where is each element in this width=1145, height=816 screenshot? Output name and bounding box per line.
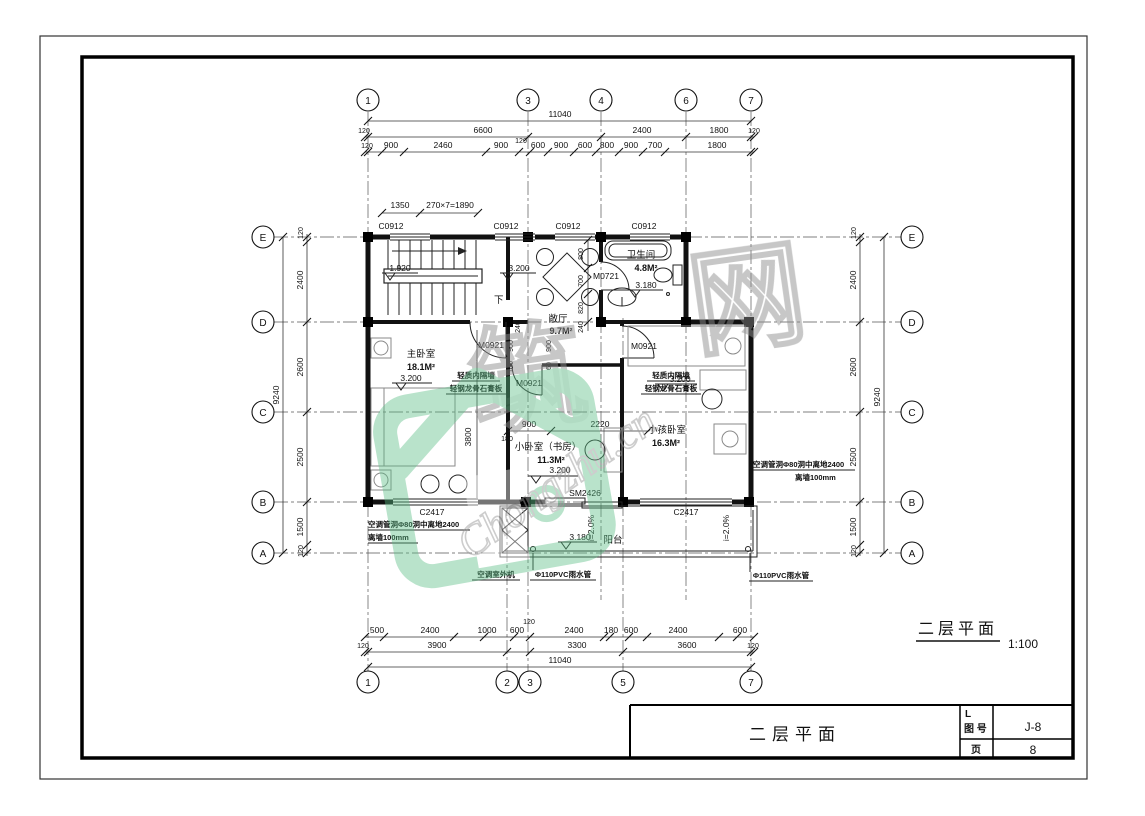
window-c0912-4 (630, 234, 670, 240)
dim-top-r3-8: 800 (600, 140, 614, 150)
grid-bubble-top-3: 3 (525, 96, 531, 107)
room-hall-level: 3.200 (508, 263, 530, 273)
grid-bubble-top-1: 1 (365, 96, 371, 107)
dim-bot-r1-5: 2400 (565, 625, 584, 635)
dim-right-5: 120 (851, 545, 858, 557)
label-c0912-4: C0912 (631, 221, 656, 231)
dim-top-r2-1: 6600 (474, 125, 493, 135)
grid-bubble-top-6: 6 (683, 96, 689, 107)
dim-right-0: 120 (851, 227, 858, 239)
grid-bubble-left-b: B (260, 498, 267, 509)
grid-bubble-right-e: E (909, 233, 916, 244)
caption-title: 二层平面 (918, 621, 998, 638)
dim-left-5: 120 (298, 545, 305, 557)
dim-bot-r2-0: 120 (357, 643, 369, 650)
title-block: 二层平面 L 图 号 页 J-8 8 (630, 705, 1073, 757)
dim-bot-r1-3: 600 (510, 625, 524, 635)
dim-right-4: 1500 (848, 517, 858, 536)
cabinet-icon (714, 424, 746, 454)
stair-down-label: 下 (494, 295, 504, 306)
dim-bot-r2-4: 120 (747, 643, 759, 650)
hall-table-icon (537, 249, 599, 306)
dim-right-total: 9240 (872, 387, 882, 406)
label-c2417-right: C2417 (673, 507, 698, 517)
dim-bot-r2-2: 3300 (568, 640, 587, 650)
room-bath-name: 卫生间 (627, 249, 656, 261)
grid-bubble-left-d: D (259, 318, 266, 329)
dim-top-r3-1: 900 (384, 140, 398, 150)
dim-top-r3-2: 2460 (434, 140, 453, 150)
label-c0912-3: C0912 (555, 221, 580, 231)
grid-bubble-left-a: A (260, 549, 267, 560)
floor-plan-sheet: 11040 120 6600 2400 1800 120 120 900 246… (0, 0, 1145, 816)
grid-bubble-bottom-5: 5 (620, 678, 626, 689)
dim-top-r3-7: 600 (578, 140, 592, 150)
note-partition-right-2: 轻钢龙骨石膏板 (645, 383, 698, 393)
watermark-char-2: 网 (682, 229, 814, 372)
dim-bot-r1-7: 600 (624, 625, 638, 635)
dim-chain-mid-0: 800 (578, 248, 585, 260)
dim-chain-mid-3: 240 (578, 321, 585, 333)
dim-top-r3-9: 900 (624, 140, 638, 150)
label-m0721: M0721 (593, 271, 619, 281)
dim-left-1: 2400 (295, 270, 305, 289)
dim-right-2: 2600 (848, 357, 858, 376)
dim-chain-mid-2: 820 (578, 302, 585, 314)
dim-stair-1: 270×7=1890 (426, 200, 474, 210)
note-ac-hole-right-2: 离墙100mm (795, 472, 836, 482)
grid-bubble-bottom-1: 1 (365, 678, 371, 689)
dim-bot-r1-0: 500 (370, 625, 384, 635)
grid-bubble-bottom-2: 2 (504, 678, 510, 689)
grid-bubble-right-a: A (909, 549, 916, 560)
title-block-page-label: 页 (971, 744, 981, 756)
note-rain-pipe-left: Φ110PVC雨水管 (535, 569, 592, 579)
dim-top-r2-4: 120 (748, 128, 760, 135)
dim-chain-right: 120 2400 2600 2500 1500 120 9240 (848, 227, 888, 557)
dim-left-3: 2500 (295, 447, 305, 466)
stair-direction-arrow (458, 247, 467, 255)
dim-stair-0: 1350 (391, 200, 410, 210)
room-master-level: 3.200 (400, 373, 422, 383)
toilet-icon (654, 265, 682, 296)
room-master-name: 主卧室 (407, 348, 436, 360)
dim-chain-top: 11040 120 6600 2400 1800 120 120 900 246… (358, 109, 760, 156)
washbasin-icon (608, 288, 636, 306)
dim-top-r3-11: 1800 (708, 140, 727, 150)
dim-top-r3-6: 900 (554, 140, 568, 150)
dim-stair: 1350 270×7=1890 (378, 200, 482, 217)
title-block-page-value: 8 (1030, 743, 1037, 757)
dim-bot-total: 11040 (548, 655, 571, 665)
title-block-l: L (965, 709, 971, 720)
title-block-name: 二层平面 (749, 725, 841, 744)
dim-top-r3-10: 700 (648, 140, 662, 150)
label-c0912-1: C0912 (378, 221, 403, 231)
grid-bubble-left-e: E (260, 233, 267, 244)
dim-left-2: 2600 (295, 357, 305, 376)
grid-bubble-bottom-7: 7 (748, 678, 754, 689)
caption-scale: 1:100 (1008, 637, 1038, 651)
grid-bubble-top-7: 7 (748, 96, 754, 107)
grid-bubble-right-b: B (909, 498, 916, 509)
room-master-area: 18.1M² (407, 362, 435, 372)
dim-top-r3-0: 120 (361, 143, 373, 150)
title-block-no-value: J-8 (1025, 720, 1042, 734)
desk-icon (700, 370, 746, 390)
dim-top-r2-3: 1800 (710, 125, 729, 135)
dim-chain-mid-1: 700 (578, 275, 585, 287)
room-bath-level: 3.180 (635, 280, 657, 290)
dim-bot-r1-9: 600 (733, 625, 747, 635)
grid-bubble-bottom-3: 3 (527, 678, 533, 689)
dim-bot-r1-8: 2400 (669, 625, 688, 635)
dim-top-r2-0: 120 (358, 128, 370, 135)
dim-master-depth: 3800 (463, 427, 473, 446)
grid-bubble-left-c: C (259, 408, 266, 419)
window-c0912-1 (390, 234, 430, 240)
dim-left-0: 120 (298, 227, 305, 239)
balcony-slope-right: i=2.0% (721, 514, 731, 541)
note-ac-hole-right-1: 空调管洞Φ80洞中离地2400 (753, 459, 844, 469)
label-c2417-left: C2417 (419, 507, 444, 517)
dim-top-r3-4: 120 (515, 138, 527, 145)
stair: 下 (384, 240, 504, 315)
dim-bot-r2-3: 3600 (678, 640, 697, 650)
dim-bot-r2-1: 3900 (428, 640, 447, 650)
dim-bot-r1-6: 180 (604, 625, 618, 635)
chair-icon (702, 389, 722, 409)
room-bath-area: 4.8M² (634, 263, 657, 273)
dim-bot-r1-1: 2400 (421, 625, 440, 635)
dim-top-r3-5: 600 (531, 140, 545, 150)
dim-left-4: 1500 (295, 517, 305, 536)
label-m0921-kids: M0921 (631, 341, 657, 351)
label-c0912-2: C0912 (493, 221, 518, 231)
grid-bubble-top-4: 4 (598, 96, 604, 107)
dim-right-3: 2500 (848, 447, 858, 466)
dim-top-total: 11040 (548, 109, 571, 119)
dim-top-r2-2: 2400 (633, 125, 652, 135)
dim-bot-r1-4: 120 (523, 619, 535, 626)
title-block-no-label: 图 号 (964, 723, 987, 735)
grid-bubble-right-c: C (908, 408, 915, 419)
dim-bot-r1-2: 1000 (478, 625, 497, 635)
plan-caption: 二层平面 1:100 (916, 621, 1038, 651)
dim-chain-left: 120 2400 2600 2500 1500 120 9240 (271, 227, 311, 557)
dim-top-r3-3: 900 (494, 140, 508, 150)
note-rain-pipe-right: Φ110PVC雨水管 (753, 570, 810, 580)
note-partition-right-1: 轻质内隔墙 (652, 370, 690, 380)
stair-level: 1.920 (389, 263, 411, 273)
chair-icon (421, 475, 439, 493)
dim-right-1: 2400 (848, 270, 858, 289)
grid-bubble-right-d: D (908, 318, 915, 329)
dim-chain-bottom: 500 2400 1000 600 120 2400 180 600 2400 … (357, 619, 759, 671)
dim-left-total: 9240 (271, 385, 281, 404)
